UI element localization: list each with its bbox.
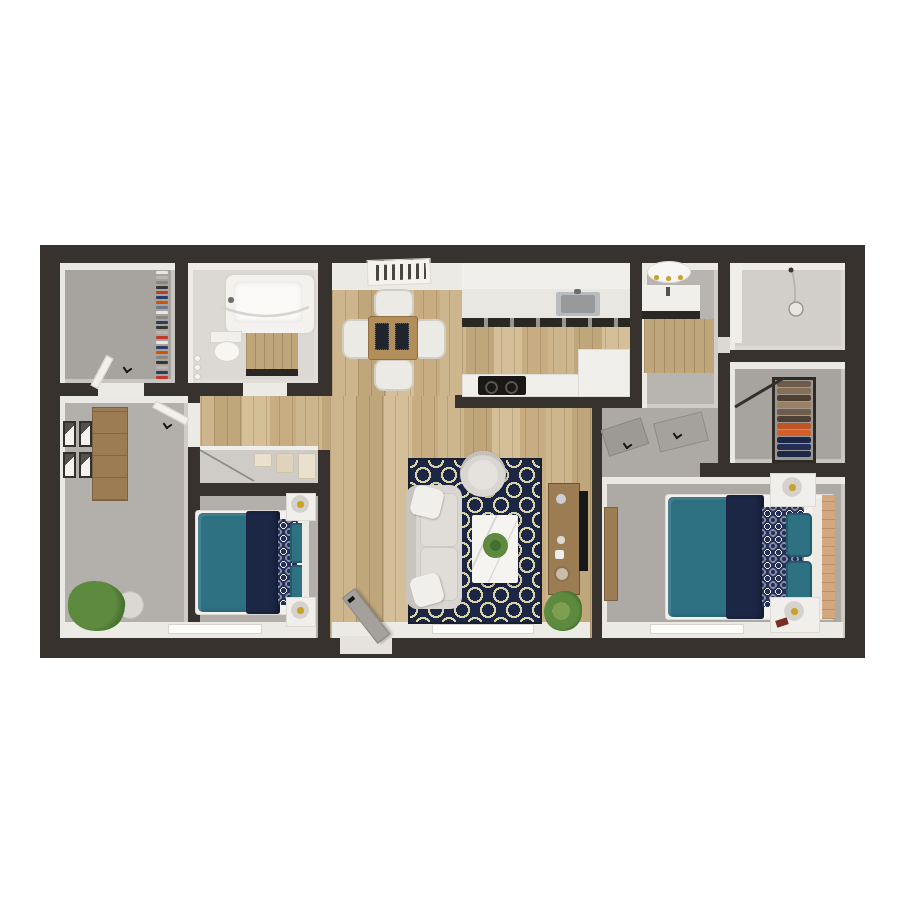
hallway-floor: [188, 396, 330, 450]
accent-chair: [460, 451, 506, 497]
folded-clothes-stack: [777, 444, 811, 450]
entry-door-opening: [340, 636, 392, 654]
hanging-garment: [156, 346, 168, 349]
kitchen-peninsula-return: [578, 349, 630, 397]
wall-bedroom1-living: [318, 450, 330, 638]
console-decor-jar: [555, 550, 564, 559]
cooktop: [478, 376, 526, 395]
folded-clothes-stack: [777, 388, 811, 394]
entry-door-handle: [347, 596, 355, 603]
bathroom1-door-opening: [243, 383, 287, 396]
bed1-navy-throw: [246, 511, 280, 614]
hanging-garment: [156, 361, 168, 364]
folded-clothes-stack: [777, 416, 811, 422]
bathtub-faucet: [228, 297, 234, 303]
kitchen-upper-cabinets: [462, 263, 630, 290]
hanging-garment: [156, 331, 168, 334]
ceiling-vent: [367, 258, 432, 286]
hanging-garment: [156, 371, 168, 374]
wall-kitchen-bath2: [630, 263, 642, 408]
art-frame: [79, 421, 92, 447]
shower-glass-panel: [732, 263, 742, 343]
bedroom1-window: [168, 624, 262, 634]
bathroom2-vanity-faucet: [666, 287, 670, 296]
folded-clothes-stack: [777, 423, 811, 429]
hanging-garment: [156, 351, 168, 354]
dining-chair-south: [374, 359, 414, 391]
bedroom2-window: [650, 624, 744, 634]
bedroom1-plant: [68, 581, 126, 631]
folded-clothes-stack: [777, 430, 811, 436]
placemat-left: [375, 323, 389, 350]
floor-plan: [40, 245, 865, 658]
folded-linen-stack: [298, 453, 316, 479]
bed2-headboard-wood-panel: [822, 495, 835, 619]
closet2-shelf-unit: [772, 377, 816, 463]
hanging-garment: [156, 366, 168, 369]
folded-clothes-stack: [777, 395, 811, 401]
hanging-garment: [156, 276, 168, 279]
bedroom1-lamp-north: [291, 495, 309, 513]
bathtub-basin: [233, 281, 303, 323]
folded-linen-stack: [276, 453, 294, 473]
hanging-garment: [156, 296, 168, 299]
kitchen-sink-basin: [561, 295, 595, 313]
hanging-garment: [156, 281, 168, 284]
hanging-garment: [156, 301, 168, 304]
bedroom2-lamp-north: [782, 477, 802, 497]
console-decor-basket: [554, 566, 570, 582]
bedroom1-lamp-south: [291, 601, 309, 619]
bedroom2-lamp-south: [784, 601, 804, 621]
bathroom1-vanity: [246, 333, 298, 373]
hanging-garment: [156, 311, 168, 314]
placemat-right: [395, 323, 409, 350]
hanging-garment: [156, 321, 168, 324]
hanging-garment: [156, 291, 168, 294]
closet1-door-opening: [98, 383, 144, 396]
burner-right: [505, 381, 518, 394]
vanity-light-fixture: [647, 261, 691, 283]
hanging-garment: [156, 376, 168, 379]
wall-closet1-bath1: [175, 263, 188, 383]
hanging-garment: [156, 356, 168, 359]
art-frame: [79, 452, 92, 478]
toiletries: [194, 355, 208, 375]
floor-plan-page: [0, 0, 900, 900]
kitchen-base-cabinet-front: [462, 318, 630, 327]
living-room-plant: [544, 591, 582, 631]
bed2-navy-throw: [726, 495, 764, 619]
linen-closet-threshold: [200, 446, 318, 450]
dining-chair-north: [374, 289, 414, 319]
bedroom2-dresser: [604, 507, 618, 601]
closet1-hanging-rack: [152, 269, 168, 381]
console-decor-cup: [557, 536, 565, 544]
folded-clothes-stack: [777, 451, 811, 457]
wall-bath2-shower: [718, 263, 730, 477]
art-frame: [63, 421, 76, 447]
folded-clothes-stack: [777, 381, 811, 387]
coffee-table-plant: [483, 533, 508, 558]
kitchen-sink-faucet: [574, 289, 581, 294]
hanging-garment: [156, 326, 168, 329]
kitchen-counter: [462, 289, 630, 318]
hanging-garment: [156, 341, 168, 344]
hanging-garment: [156, 316, 168, 319]
console-decor-vase: [556, 494, 566, 504]
tv: [579, 491, 588, 571]
art-frame: [63, 452, 76, 478]
burner-left: [485, 381, 498, 394]
bathroom2-vanity-counter: [642, 285, 700, 311]
hanging-garment: [156, 271, 168, 274]
folded-clothes-stack: [777, 437, 811, 443]
bed2-pillow-1: [786, 513, 812, 557]
shower-room-floor: [730, 263, 845, 350]
folded-clothes-stack: [777, 402, 811, 408]
folded-clothes-stack: [777, 409, 811, 415]
bedroom1-dresser: [92, 407, 128, 501]
hanging-garment: [156, 336, 168, 339]
sofa: [406, 485, 462, 609]
folded-linen-stack: [254, 453, 272, 467]
bathroom2-vanity-front: [642, 311, 700, 319]
living-room-window: [432, 624, 534, 634]
bathroom2-wood-cabinet: [644, 319, 714, 373]
shower-door-opening: [718, 337, 730, 353]
hanging-garment: [156, 286, 168, 289]
linen-closet-shelves: [254, 453, 316, 481]
wall-art-frames: [63, 421, 95, 479]
hanging-garment: [156, 306, 168, 309]
media-console: [548, 483, 580, 595]
bedroom1-door-opening: [188, 403, 200, 447]
bathroom1-vanity-front: [246, 369, 298, 376]
toilet-bowl: [214, 341, 240, 362]
wall-bath1-dining: [318, 263, 332, 396]
wall-shower-closet2: [730, 350, 845, 362]
